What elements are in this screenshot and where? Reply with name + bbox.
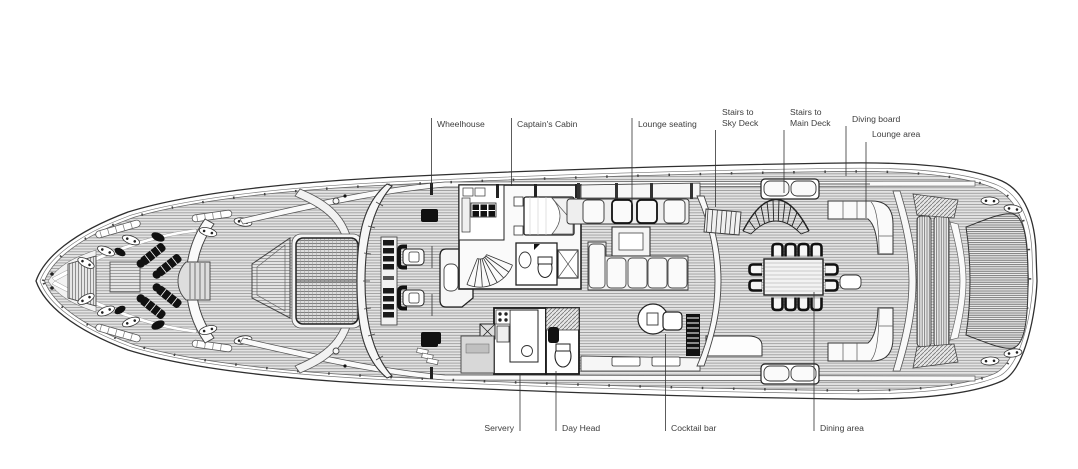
svg-text:Sky Deck: Sky Deck	[722, 118, 759, 128]
svg-text:Servery: Servery	[484, 423, 514, 433]
svg-text:Lounge area: Lounge area	[872, 129, 920, 139]
svg-text:Lounge seating: Lounge seating	[638, 119, 697, 129]
svg-text:Captain's Cabin: Captain's Cabin	[517, 119, 578, 129]
svg-text:Diving board: Diving board	[852, 114, 900, 124]
svg-text:Main Deck: Main Deck	[790, 118, 831, 128]
svg-text:Day Head: Day Head	[562, 423, 600, 433]
svg-text:Wheelhouse: Wheelhouse	[437, 119, 485, 129]
svg-text:Dining area: Dining area	[820, 423, 864, 433]
svg-text:Stairs to: Stairs to	[790, 107, 822, 117]
svg-text:Stairs to: Stairs to	[722, 107, 754, 117]
svg-text:Cocktail bar: Cocktail bar	[671, 423, 717, 433]
